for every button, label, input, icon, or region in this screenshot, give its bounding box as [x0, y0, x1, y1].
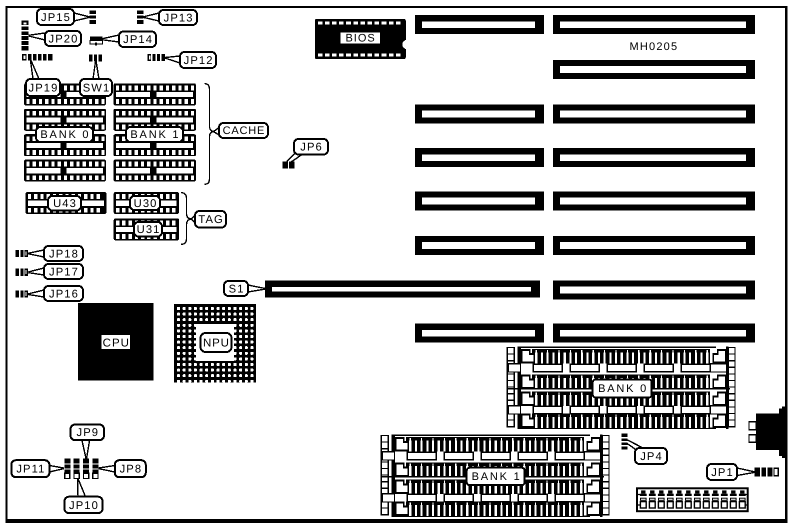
svg-text:U31: U31 — [137, 224, 161, 236]
svg-text:JP15: JP15 — [41, 12, 71, 24]
svg-text:JP16: JP16 — [49, 288, 79, 300]
svg-text:BANK 0: BANK 0 — [598, 383, 648, 395]
svg-text:BANK 1: BANK 1 — [130, 129, 180, 141]
svg-text:JP6: JP6 — [300, 142, 323, 154]
svg-text:JP14: JP14 — [123, 34, 153, 46]
svg-text:CACHE: CACHE — [223, 125, 266, 137]
svg-text:BANK 0: BANK 0 — [40, 129, 90, 141]
svg-text:SW1: SW1 — [83, 82, 111, 94]
svg-text:CPU: CPU — [103, 337, 130, 349]
svg-text:BANK 1: BANK 1 — [472, 471, 522, 483]
svg-text:JP20: JP20 — [49, 33, 79, 45]
svg-text:U43: U43 — [53, 198, 77, 210]
svg-text:JP19: JP19 — [29, 82, 59, 94]
svg-text:JP13: JP13 — [164, 12, 194, 24]
svg-text:BIOS: BIOS — [345, 33, 375, 45]
svg-text:JP8: JP8 — [120, 464, 143, 476]
svg-text:JP4: JP4 — [640, 451, 663, 463]
svg-text:JP11: JP11 — [16, 464, 45, 476]
svg-text:JP9: JP9 — [77, 427, 100, 439]
svg-text:MH0205: MH0205 — [630, 41, 679, 53]
svg-text:JP10: JP10 — [69, 500, 99, 512]
svg-text:JP17: JP17 — [49, 266, 79, 278]
svg-text:JP1: JP1 — [711, 467, 734, 479]
svg-text:S1: S1 — [229, 283, 245, 295]
svg-text:JP18: JP18 — [49, 248, 79, 260]
svg-text:NPU: NPU — [203, 337, 230, 349]
svg-text:U30: U30 — [134, 198, 158, 210]
svg-text:TAG: TAG — [198, 214, 223, 226]
svg-text:JP12: JP12 — [184, 55, 214, 67]
